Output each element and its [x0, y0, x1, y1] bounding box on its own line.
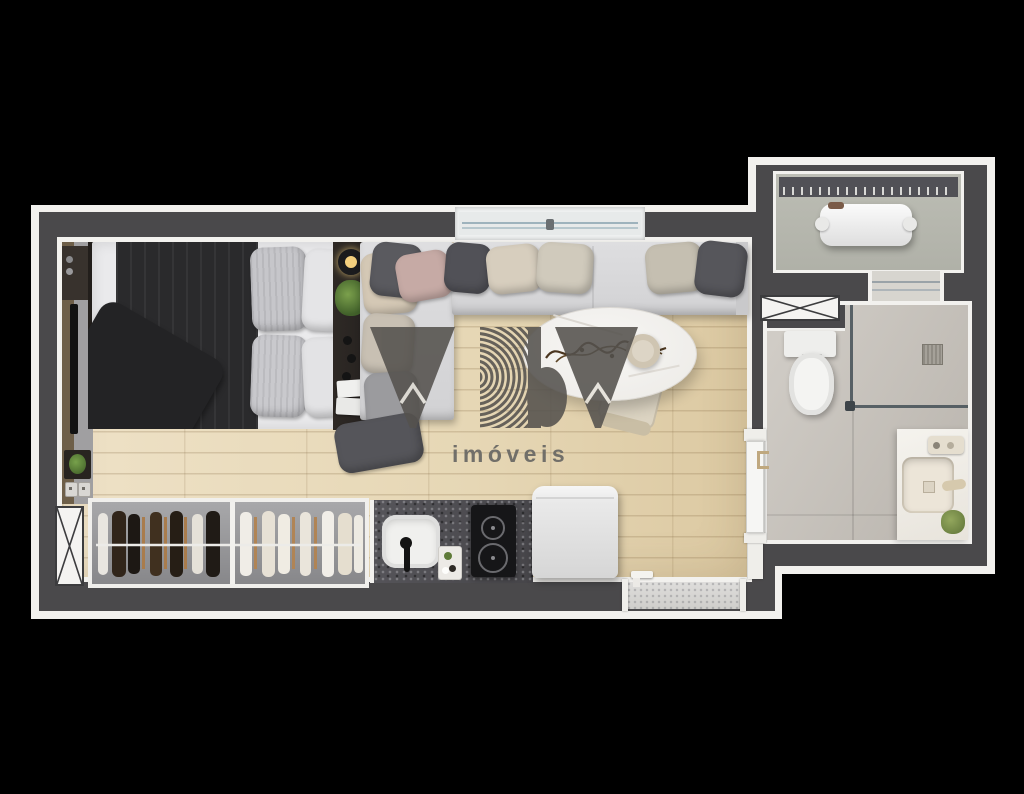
appliance-cap-right: [903, 217, 917, 231]
media-shelf-panel: [62, 246, 91, 300]
shower-glass-panel: [850, 305, 853, 408]
vanity-spout: [941, 478, 966, 491]
decor-knob: [66, 268, 73, 275]
logo-letter-y2: [555, 327, 638, 428]
bed-pillow: [250, 246, 309, 332]
sink-faucet-head: [400, 537, 412, 549]
window-handle: [546, 219, 554, 230]
basin-drain: [923, 481, 935, 493]
sofa-cushion: [535, 241, 594, 295]
door-pull-handle: [757, 451, 769, 469]
bed-pillow: [250, 334, 309, 418]
tile-grout-line: [767, 514, 897, 516]
door-jamb: [744, 533, 766, 543]
plant-leaf-icon: [69, 454, 86, 474]
refrigerator: [532, 486, 618, 578]
door-track-line: [872, 289, 940, 291]
entry-door-handle: [631, 571, 653, 578]
hanging-clothes: [92, 502, 365, 584]
door-jamb: [622, 579, 628, 611]
sofa-cushion: [485, 242, 544, 295]
entry-door-handle: [633, 578, 640, 587]
sofa-cushion: [693, 239, 749, 299]
light-switch: [78, 482, 91, 497]
appliance-hose-detail: [828, 202, 844, 209]
door-track-line: [872, 281, 940, 283]
burner-dot: [491, 556, 495, 560]
decor-knob: [347, 354, 356, 363]
soap-item: [444, 552, 452, 560]
watermark-subtitle: imóveis: [452, 441, 569, 468]
accessory-tray: [438, 546, 462, 580]
logo-letter-y1: [370, 327, 455, 428]
appliance-cap-left: [815, 217, 829, 231]
framed-plant: [64, 450, 91, 479]
window: [455, 207, 645, 240]
faucet-knob: [933, 442, 940, 449]
tile-grout-line: [852, 406, 854, 540]
logo-letter-b-bowl: [527, 367, 567, 427]
service-area-floor: [773, 171, 964, 273]
soap-item: [449, 565, 456, 572]
service-appliance-unit: [820, 204, 912, 246]
wardrobe: [88, 498, 369, 588]
cooktop: [471, 505, 516, 577]
appliance-seam: [536, 497, 614, 499]
toilet-bowl: [789, 353, 834, 415]
shower-door-knob: [845, 401, 855, 411]
faucet-set: [928, 436, 964, 454]
duct-shaft-symbol-right: [760, 295, 840, 321]
wall-mounted-tv: [70, 304, 78, 434]
burner-dot: [491, 526, 495, 530]
shower-drain: [922, 344, 943, 365]
door-jamb: [740, 579, 746, 611]
door-jamb: [744, 429, 766, 441]
louvered-vent-wall: [779, 177, 958, 197]
service-bathroom-threshold: [868, 271, 944, 304]
double-bed: [88, 242, 345, 429]
entry-threshold: [627, 582, 741, 609]
faucet-knob: [947, 442, 954, 449]
vanity-plant: [941, 510, 965, 534]
vanity-counter: [897, 429, 968, 540]
sofa-cushion: [443, 241, 493, 295]
light-switch: [65, 482, 78, 497]
wardrobe-divider: [230, 502, 235, 584]
duct-shaft-symbol-left: [55, 506, 84, 586]
soap-item: [442, 567, 449, 574]
decor-knob: [343, 336, 352, 345]
shower-glass-panel: [850, 405, 968, 408]
decor-knob: [66, 256, 73, 263]
floor-plan-canvas: imóveis: [0, 0, 1024, 794]
watermark-logo: [370, 327, 638, 428]
